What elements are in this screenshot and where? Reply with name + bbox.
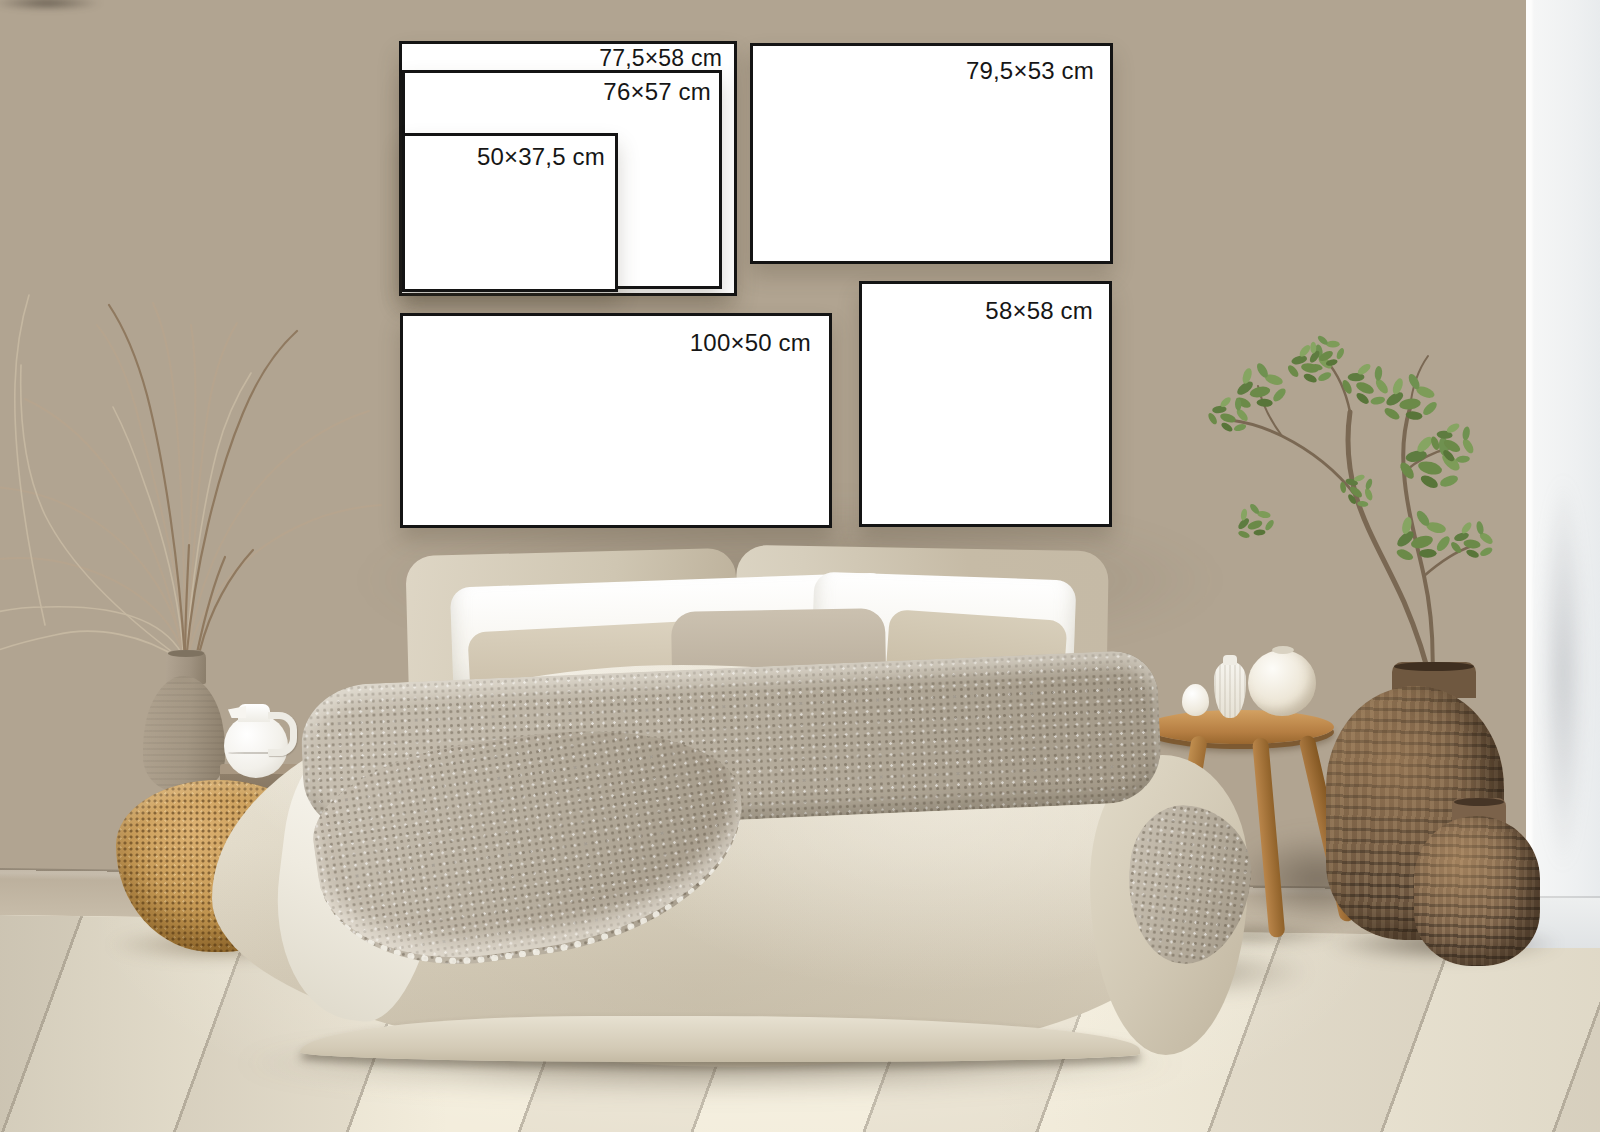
small-wicker-vase (1414, 816, 1540, 966)
green-plant (1160, 300, 1520, 700)
frame-size-label: 77,5×58 cm (599, 46, 722, 70)
ceramic-jug (224, 704, 290, 778)
decor-egg (1182, 684, 1209, 716)
frame-size-label: 76×57 cm (603, 79, 711, 104)
size-frame-79-5x53: 79,5×53 cm (750, 43, 1113, 264)
size-frame-100x50: 100×50 cm (400, 313, 832, 528)
jug-spout (228, 706, 246, 718)
frame-size-label: 100×50 cm (690, 330, 811, 355)
white-wall-corner (1526, 0, 1600, 948)
dried-grass (0, 155, 385, 675)
bedroom-poster-size-mockup: 77,5×58 cm 76×57 cm 50×37,5 cm 79,5×53 c… (0, 0, 1600, 1132)
size-frame-50x37-5: 50×37,5 cm (402, 133, 618, 292)
jug-handle (268, 712, 297, 756)
wall-streak-shadow (1540, 474, 1586, 872)
frame-size-label: 50×37,5 cm (477, 144, 605, 169)
frame-size-label: 58×58 cm (985, 298, 1093, 323)
size-frame-58x58: 58×58 cm (859, 281, 1112, 527)
sphere-vase (1248, 650, 1316, 716)
frame-size-label: 79,5×53 cm (966, 58, 1094, 83)
